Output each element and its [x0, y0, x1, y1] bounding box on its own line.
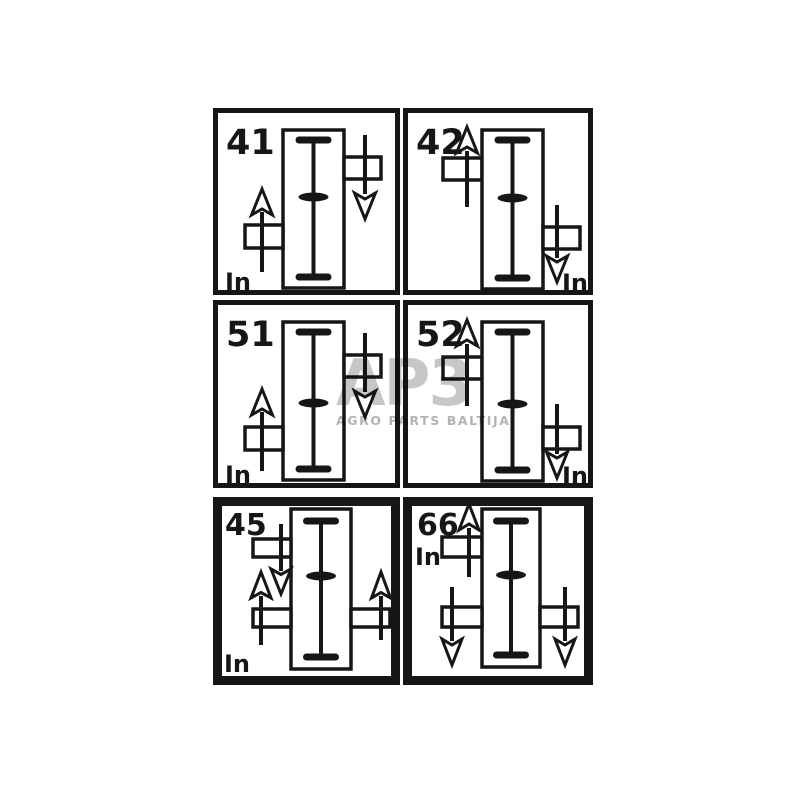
gear-icon [498, 194, 528, 203]
cell-42-schematic: 42 In [403, 108, 593, 295]
input-label: In [224, 650, 250, 678]
input-label: In [225, 268, 251, 295]
cell-number-label: 41 [226, 123, 275, 163]
gearbox-housing [482, 322, 543, 481]
gearbox-housing [291, 509, 351, 669]
gearbox-housing [283, 130, 344, 288]
cell-45: 45 In [213, 497, 400, 685]
cell-number-label: 42 [416, 123, 465, 163]
gear-icon [299, 193, 329, 202]
input-label: In [415, 543, 441, 571]
cell-number-label: 45 [225, 508, 267, 543]
gearbox-configuration-diagram: 41 In 42 In [0, 0, 800, 800]
cell-42: 42 In [403, 108, 593, 295]
cell-41-schematic: 41 In [213, 108, 400, 295]
cell-66-schematic: 66 In [403, 497, 593, 685]
cell-52-schematic: 52 In [403, 300, 593, 488]
cell-number-label: 51 [226, 315, 275, 355]
gear-icon [299, 399, 329, 408]
cell-45-schematic: 45 In [213, 497, 400, 685]
input-label: In [562, 269, 588, 295]
gearbox-housing [482, 130, 543, 289]
input-label: In [562, 462, 588, 488]
gearbox-housing [482, 509, 540, 667]
cell-51-schematic: 51 In [213, 300, 400, 488]
cell-52: 52 In [403, 300, 593, 488]
cell-51: 51 In [213, 300, 400, 488]
cell-41: 41 In [213, 108, 400, 295]
cell-number-label: 66 [417, 508, 459, 543]
gearbox-housing [283, 322, 344, 480]
input-label: In [225, 461, 251, 488]
cell-number-label: 52 [416, 315, 465, 355]
gear-icon [498, 400, 528, 409]
gear-icon [496, 571, 526, 580]
gear-icon [306, 572, 336, 581]
cell-66: 66 In [403, 497, 593, 685]
